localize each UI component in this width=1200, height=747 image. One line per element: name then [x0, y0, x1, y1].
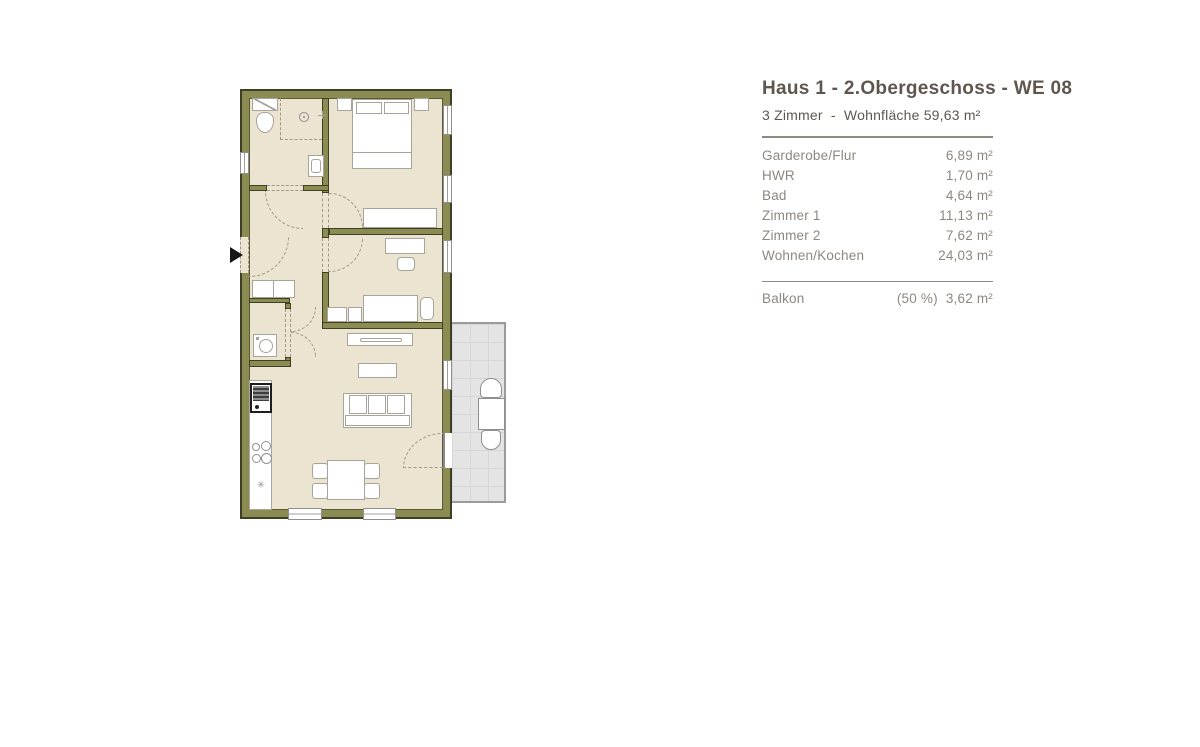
room-area: 4,64 m²	[946, 186, 993, 206]
single-bed-icon	[363, 295, 418, 322]
table-row: Garderobe/Flur 6,89 m²	[762, 146, 993, 166]
window	[240, 152, 249, 174]
door-opening	[322, 193, 329, 228]
table-row: Bad 4,64 m²	[762, 186, 993, 206]
window	[443, 360, 452, 390]
wall	[249, 360, 291, 367]
page-title: Haus 1 - 2.Obergeschoss - WE 08	[762, 78, 993, 100]
balcony-table-icon	[478, 398, 505, 430]
room-label: Wohnen/Kochen	[762, 246, 864, 266]
room-area: 6,89 m²	[946, 146, 993, 166]
sofa-icon	[343, 393, 412, 428]
wall	[322, 322, 443, 329]
cooktop-icon	[249, 437, 272, 471]
table-row: HWR 1,70 m²	[762, 166, 993, 186]
room-label: Zimmer 2	[762, 226, 821, 246]
floor-plan: ✳	[230, 85, 510, 525]
room-label: Zimmer 1	[762, 206, 821, 226]
table-row: Zimmer 1 11,13 m²	[762, 206, 993, 226]
room-label: Garderobe/Flur	[762, 146, 856, 166]
dresser-icon	[348, 307, 362, 322]
dining-chair-icon	[312, 463, 328, 479]
balcony-chair-icon	[481, 430, 501, 450]
room-area: 24,03 m²	[938, 246, 993, 266]
wall	[303, 185, 329, 191]
window	[288, 508, 322, 520]
page-subtitle: 3 Zimmer - Wohnfläche 59,63 m²	[762, 107, 993, 123]
nightstand-icon	[414, 98, 429, 111]
balcony-chair-icon	[480, 378, 502, 398]
info-panel: Haus 1 - 2.Obergeschoss - WE 08 3 Zimmer…	[762, 78, 993, 306]
room-area: 11,13 m²	[939, 206, 993, 226]
room-label: HWR	[762, 166, 795, 186]
sideboard-icon	[347, 333, 413, 346]
balcony-note: (50 %)	[897, 291, 938, 306]
room-area: 1,70 m²	[946, 166, 993, 186]
room-label: Balkon	[762, 291, 804, 306]
table-row: Wohnen/Kochen 24,03 m²	[762, 246, 993, 266]
area-table: Garderobe/Flur 6,89 m² HWR 1,70 m² Bad 4…	[762, 146, 993, 266]
wall	[249, 298, 290, 303]
desk-icon	[385, 238, 425, 254]
room-area: 7,62 m²	[946, 226, 993, 246]
balcony	[450, 322, 506, 503]
wall	[322, 228, 329, 238]
dining-chair-icon	[364, 483, 380, 499]
balcony-door	[443, 433, 452, 468]
window	[443, 105, 452, 135]
coffee-table-icon	[358, 363, 397, 378]
washing-machine-icon	[253, 334, 277, 357]
divider	[762, 281, 993, 283]
dresser-icon	[327, 307, 347, 322]
washbasin-icon	[308, 155, 324, 177]
sink-drain-icon: ✳	[251, 481, 271, 491]
showerhead-icon	[299, 112, 309, 122]
hall-wardrobe-icon	[252, 280, 295, 298]
dining-chair-icon	[312, 483, 328, 499]
balcony-row: Balkon (50 %) 3,62 m²	[762, 291, 993, 306]
room-area: 3,62 m²	[946, 291, 993, 306]
window	[443, 175, 452, 203]
nightstand-icon	[337, 98, 352, 111]
room-label: Bad	[762, 186, 787, 206]
door-opening	[322, 238, 329, 272]
dining-table-icon	[327, 460, 365, 500]
table-row: Zimmer 2 7,62 m²	[762, 226, 993, 246]
chair-icon	[397, 257, 415, 271]
balcony-door-leaf	[403, 467, 443, 468]
shower-faucet-icon	[318, 111, 326, 119]
double-bed-icon	[352, 99, 412, 169]
entrance-arrow-icon	[230, 247, 243, 263]
dining-chair-icon	[364, 463, 380, 479]
window	[443, 240, 452, 273]
kitchen-sink-icon	[250, 383, 272, 413]
divider	[762, 136, 993, 138]
wall	[329, 228, 443, 235]
bathroom-shelf-icon	[252, 98, 278, 111]
window	[363, 508, 396, 520]
pillow-icon	[420, 297, 434, 320]
wardrobe-icon	[363, 208, 437, 228]
